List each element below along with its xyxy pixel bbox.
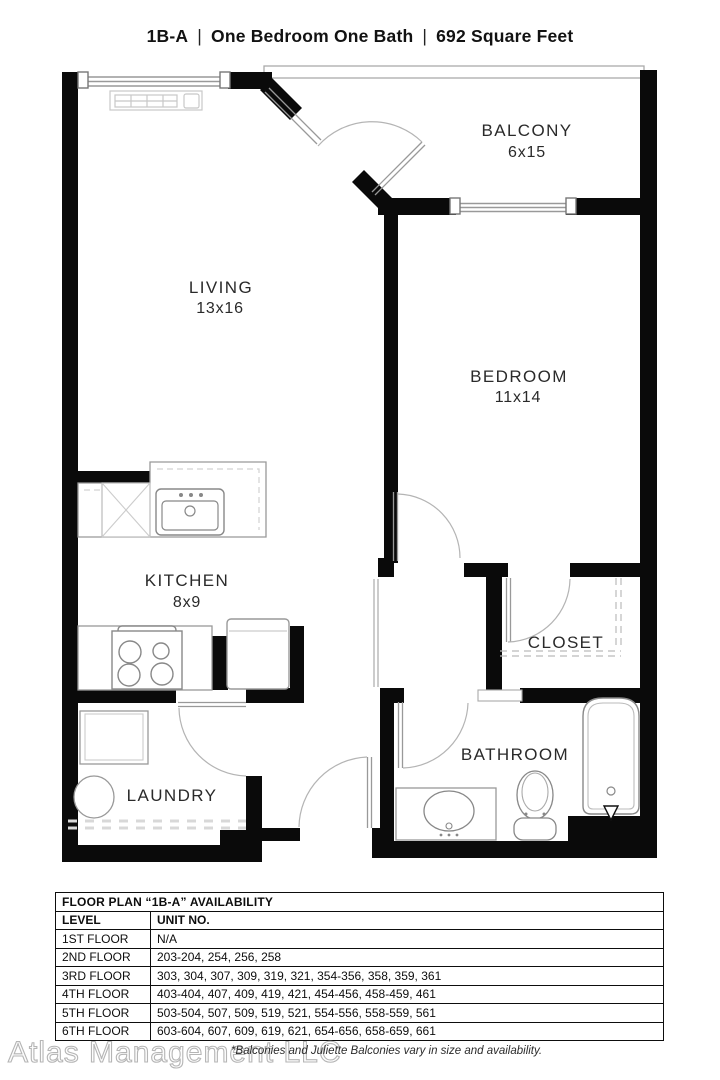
balcony-railing (264, 66, 644, 78)
availability-table: FLOOR PLAN “1B-A” AVAILABILITY LEVEL UNI… (55, 892, 664, 1041)
living-label: LIVING (189, 278, 253, 298)
floor-plan-sheet: 1B-A|One Bedroom One Bath|692 Square Fee… (0, 0, 720, 1080)
units-cell: 403-404, 407, 409, 419, 421, 454-456, 45… (151, 985, 664, 1004)
table-row: 1ST FLOOR N/A (56, 930, 664, 949)
washer (80, 711, 148, 764)
refrigerator (227, 619, 289, 689)
table-title-row: FLOOR PLAN “1B-A” AVAILABILITY (56, 893, 664, 912)
bedroom-door (394, 492, 461, 561)
column-header-level: LEVEL (56, 911, 151, 930)
dishwasher (102, 483, 150, 537)
table-row: 5TH FLOOR 503-504, 507, 509, 519, 521, 5… (56, 1004, 664, 1023)
bathroom-label: BATHROOM (461, 745, 569, 765)
bathroom-door (399, 702, 469, 768)
level-cell: 1ST FLOOR (56, 930, 151, 949)
units-cell: 503-504, 507, 509, 519, 521, 554-556, 55… (151, 1004, 664, 1023)
hall-partition (374, 579, 378, 687)
table-row: 3RD FLOOR 303, 304, 307, 309, 319, 321, … (56, 967, 664, 986)
bathtub (583, 698, 639, 820)
table-title: FLOOR PLAN “1B-A” AVAILABILITY (56, 893, 664, 912)
kitchen-label: KITCHEN (145, 571, 229, 591)
units-cell: N/A (151, 930, 664, 949)
column-header-unit-no: UNIT NO. (151, 911, 664, 930)
living-dims: 13x16 (196, 300, 244, 318)
level-cell: 2ND FLOOR (56, 948, 151, 967)
kitchen-sink (156, 489, 224, 535)
entry-door (299, 757, 372, 828)
living-window (78, 72, 230, 88)
bathroom-cased-opening (478, 690, 522, 701)
laundry-basin (74, 776, 114, 818)
toilet (514, 771, 556, 840)
table-row: 4TH FLOOR 403-404, 407, 409, 419, 421, 4… (56, 985, 664, 1004)
closet-label: CLOSET (528, 633, 604, 653)
bedroom-dims: 11x14 (495, 389, 541, 407)
units-cell: 203-204, 254, 256, 258 (151, 948, 664, 967)
table-row: 2ND FLOOR 203-204, 254, 256, 258 (56, 948, 664, 967)
heater-vent (110, 91, 202, 110)
level-cell: 4TH FLOOR (56, 985, 151, 1004)
stove (112, 626, 182, 689)
balcony-dims: 6x15 (508, 144, 546, 162)
balcony-slider-window (450, 198, 576, 214)
bedroom-label: BEDROOM (470, 367, 568, 387)
table-header-row: LEVEL UNIT NO. (56, 911, 664, 930)
level-cell: 3RD FLOOR (56, 967, 151, 986)
laundry-label: LAUNDRY (127, 786, 218, 806)
floor-plan-drawing (0, 0, 720, 880)
units-cell: 303, 304, 307, 309, 319, 321, 354-356, 3… (151, 967, 664, 986)
laundry-door (178, 703, 246, 777)
laundry-shelf-dashes (68, 821, 246, 828)
balcony-label: BALCONY (481, 121, 572, 141)
balcony-disclaimer: *Balconies and Juliette Balconies vary i… (231, 1045, 542, 1057)
kitchen-dims: 8x9 (173, 594, 201, 612)
level-cell: 5TH FLOOR (56, 1004, 151, 1023)
